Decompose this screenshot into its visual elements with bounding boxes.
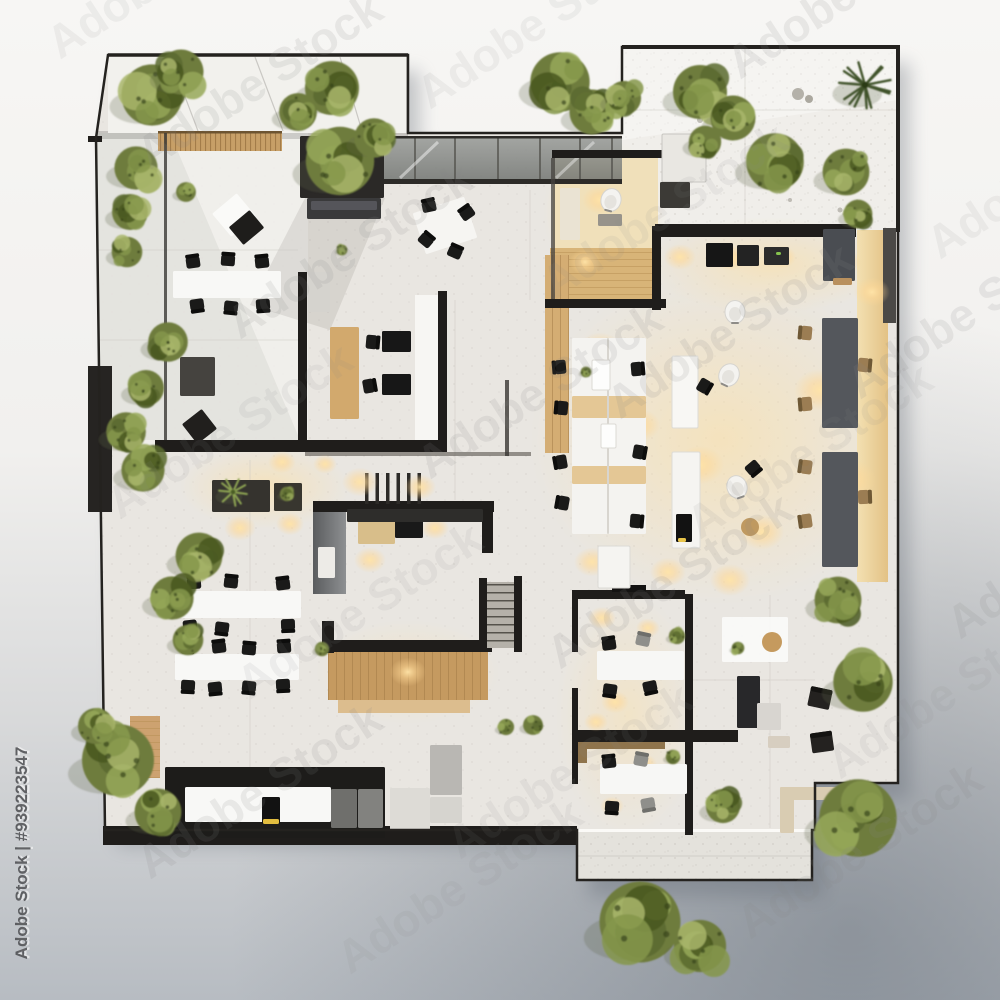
coffee-machine-b <box>737 245 759 266</box>
wall-neroom-top <box>552 150 662 158</box>
desk-unit-a <box>382 331 411 352</box>
office-chair-black <box>221 252 236 267</box>
wall-east-inner <box>883 228 896 323</box>
staircase <box>487 582 514 648</box>
rock-a <box>792 88 804 100</box>
storage-light <box>390 788 430 830</box>
reception-cabinet-b <box>358 789 383 828</box>
light-glow <box>390 658 426 687</box>
office-chair-black <box>602 683 618 699</box>
office-chair-black <box>275 575 291 591</box>
office-chair-black <box>214 621 230 637</box>
office-chair-tan <box>858 490 872 504</box>
floorplan-scene: Adobe StockAdobe StockAdobe StockAdobe S… <box>0 0 1000 1000</box>
fridge <box>318 547 335 578</box>
desk-planter-b <box>601 424 616 448</box>
office-chair-black <box>181 680 196 695</box>
office-chair-tan <box>797 513 813 529</box>
printer-table <box>757 703 781 730</box>
office-chair-gray <box>635 631 652 648</box>
side-table-lounge <box>768 736 790 748</box>
light-glow <box>313 454 337 473</box>
console-table <box>560 188 580 240</box>
office-chair-black <box>632 444 648 460</box>
office-chair-black <box>554 495 570 511</box>
terrace-sofa <box>180 357 215 396</box>
desk-unit-b <box>382 374 411 395</box>
light-glow <box>342 468 378 497</box>
light-glow <box>276 513 304 535</box>
office-chair-black <box>365 335 380 350</box>
light-glow <box>268 451 296 473</box>
office-chair-tan <box>797 397 812 412</box>
reception-accent <box>263 819 279 824</box>
workstation-desk-b <box>822 452 858 567</box>
rug-side-table <box>762 632 782 652</box>
garden-bench-l2 <box>780 787 794 833</box>
watermark-id-label: Adobe Stock | #939223547 <box>12 747 31 960</box>
light-glow <box>664 244 696 270</box>
reception-cabinet-a <box>331 789 357 828</box>
glass-wall-west <box>164 133 167 440</box>
office-chair-black <box>207 681 222 696</box>
office-chair-black <box>604 801 619 816</box>
office-chair-tan <box>797 325 812 340</box>
office-chair-black <box>185 253 201 269</box>
partition-white <box>415 295 438 448</box>
office-chair-gray <box>640 797 656 813</box>
storage-tall <box>430 745 462 795</box>
printer <box>737 676 760 728</box>
conference-table-south-a <box>175 591 301 618</box>
office-chair-black <box>362 378 378 394</box>
coffee-machine-a <box>706 243 733 267</box>
office-chair-black <box>189 298 205 314</box>
light-glow <box>224 515 256 541</box>
office-chair-black <box>629 514 644 529</box>
office-chair-black <box>254 253 269 268</box>
rock-b <box>805 95 813 103</box>
floorplan-render: Adobe StockAdobe StockAdobe StockAdobe S… <box>0 0 1000 1000</box>
light-glow <box>854 278 890 307</box>
office-chair-black <box>223 573 238 588</box>
wall-stairs-right <box>514 576 522 652</box>
appliance-indicator <box>776 252 781 255</box>
office-chair-black <box>552 454 568 470</box>
office-chair-black <box>211 638 227 654</box>
